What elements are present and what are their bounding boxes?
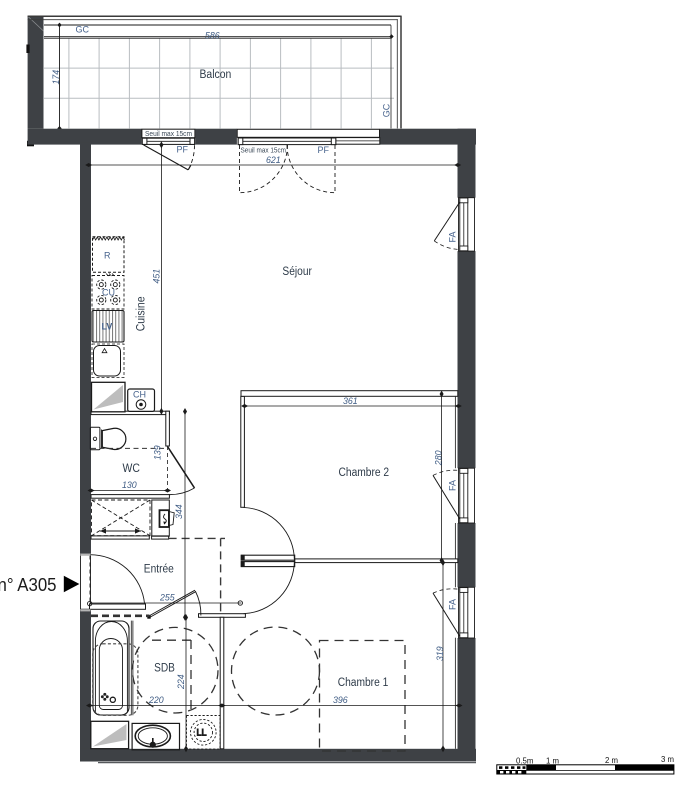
svg-text:LV: LV: [102, 322, 113, 332]
svg-text:319: 319: [435, 646, 445, 661]
svg-text:1 m: 1 m: [546, 757, 559, 766]
svg-text:224: 224: [176, 674, 186, 690]
svg-text:FA: FA: [448, 231, 458, 242]
svg-text:621: 621: [266, 155, 281, 165]
svg-text:Seuil max 15cm: Seuil max 15cm: [145, 129, 192, 138]
svg-text:R: R: [104, 251, 111, 261]
svg-text:220: 220: [148, 695, 164, 705]
svg-text:Balcon: Balcon: [200, 69, 232, 81]
svg-text:361: 361: [343, 396, 358, 406]
svg-text:PF: PF: [318, 145, 330, 155]
svg-text:344: 344: [174, 504, 184, 519]
svg-text:LL: LL: [197, 728, 207, 738]
svg-text:280: 280: [434, 450, 444, 466]
svg-text:Entrée: Entrée: [144, 563, 174, 575]
svg-text:139: 139: [153, 445, 163, 460]
svg-text:2 m: 2 m: [605, 756, 618, 765]
svg-text:CU: CU: [102, 287, 115, 297]
svg-text:CH: CH: [133, 390, 146, 400]
svg-text:255: 255: [159, 593, 175, 603]
svg-text:FA: FA: [448, 599, 458, 610]
svg-text:Séjour: Séjour: [282, 266, 312, 278]
svg-text:451: 451: [151, 269, 161, 284]
svg-text:n° A305: n° A305: [0, 574, 57, 595]
svg-text:130: 130: [122, 480, 137, 490]
svg-text:GC: GC: [76, 25, 90, 35]
svg-text:0.5m: 0.5m: [516, 757, 533, 766]
svg-text:SDB: SDB: [154, 663, 175, 675]
svg-text:174: 174: [51, 70, 61, 85]
svg-text:Cuisine: Cuisine: [136, 297, 148, 332]
svg-text:396: 396: [333, 695, 348, 705]
svg-text:Chambre 2: Chambre 2: [339, 467, 390, 479]
svg-text:586: 586: [205, 31, 220, 41]
svg-text:PF: PF: [177, 145, 189, 155]
svg-text:FA: FA: [448, 480, 458, 491]
svg-text:GC: GC: [382, 103, 392, 117]
svg-text:Chambre 1: Chambre 1: [338, 677, 389, 689]
svg-text:3 m: 3 m: [661, 755, 674, 764]
svg-text:Seuil max 15cm: Seuil max 15cm: [241, 145, 287, 154]
svg-text:WC: WC: [123, 463, 140, 475]
